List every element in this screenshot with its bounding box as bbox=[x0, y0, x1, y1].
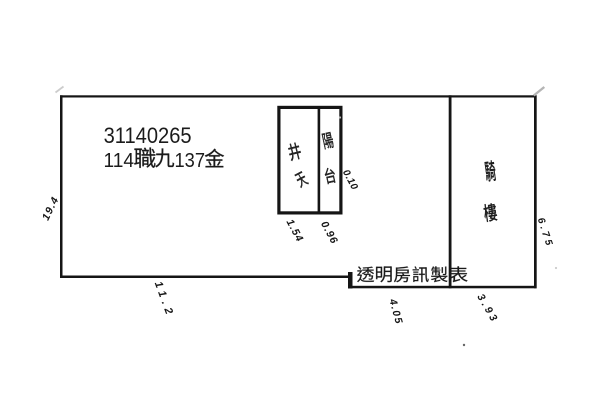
svg-text:4.05: 4.05 bbox=[386, 297, 405, 327]
svg-text:31140265: 31140265 bbox=[104, 123, 192, 148]
svg-text:19.4: 19.4 bbox=[40, 194, 62, 222]
svg-text:11.2: 11.2 bbox=[152, 280, 176, 320]
svg-text:114: 114 bbox=[104, 150, 135, 172]
svg-text:1.54: 1.54 bbox=[284, 217, 306, 244]
svg-text:137: 137 bbox=[175, 150, 206, 172]
svg-text:0.10: 0.10 bbox=[340, 168, 360, 192]
svg-text:6.75: 6.75 bbox=[535, 216, 555, 249]
svg-text:0.96: 0.96 bbox=[318, 219, 340, 246]
svg-text:3.93: 3.93 bbox=[474, 292, 501, 326]
